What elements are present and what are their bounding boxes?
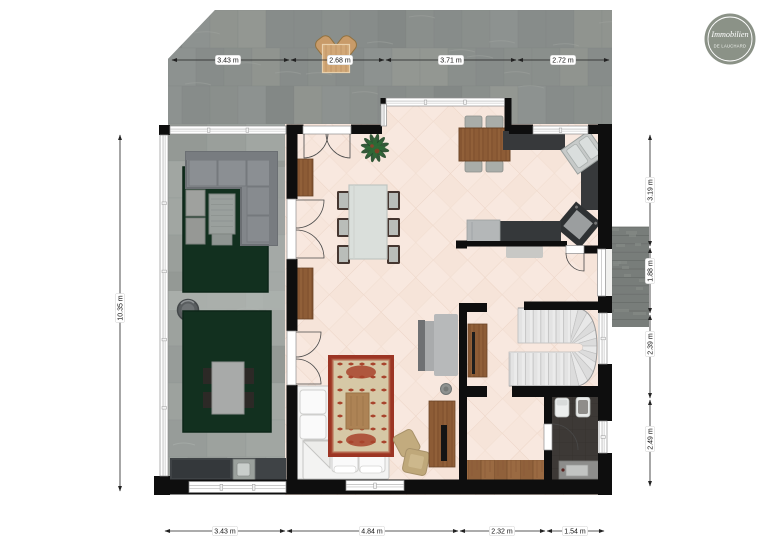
svg-text:4.84 m: 4.84 m	[361, 529, 383, 536]
svg-text:1.88 m: 1.88 m	[648, 260, 655, 282]
svg-text:3.43 m: 3.43 m	[214, 529, 236, 536]
svg-text:Immobilien: Immobilien	[710, 30, 748, 39]
svg-text:2.49 m: 2.49 m	[648, 428, 655, 450]
svg-text:3.19 m: 3.19 m	[648, 179, 655, 201]
svg-text:3.71 m: 3.71 m	[440, 58, 462, 65]
svg-text:3.43 m: 3.43 m	[217, 58, 239, 65]
svg-text:2.39 m: 2.39 m	[648, 333, 655, 355]
svg-text:10.35 m: 10.35 m	[118, 295, 125, 320]
svg-text:DE LAUCHARD: DE LAUCHARD	[714, 44, 747, 49]
svg-text:2.68 m: 2.68 m	[329, 58, 351, 65]
svg-text:2.32 m: 2.32 m	[491, 529, 513, 536]
svg-text:1.54 m: 1.54 m	[564, 529, 586, 536]
svg-text:2.72 m: 2.72 m	[552, 58, 574, 65]
